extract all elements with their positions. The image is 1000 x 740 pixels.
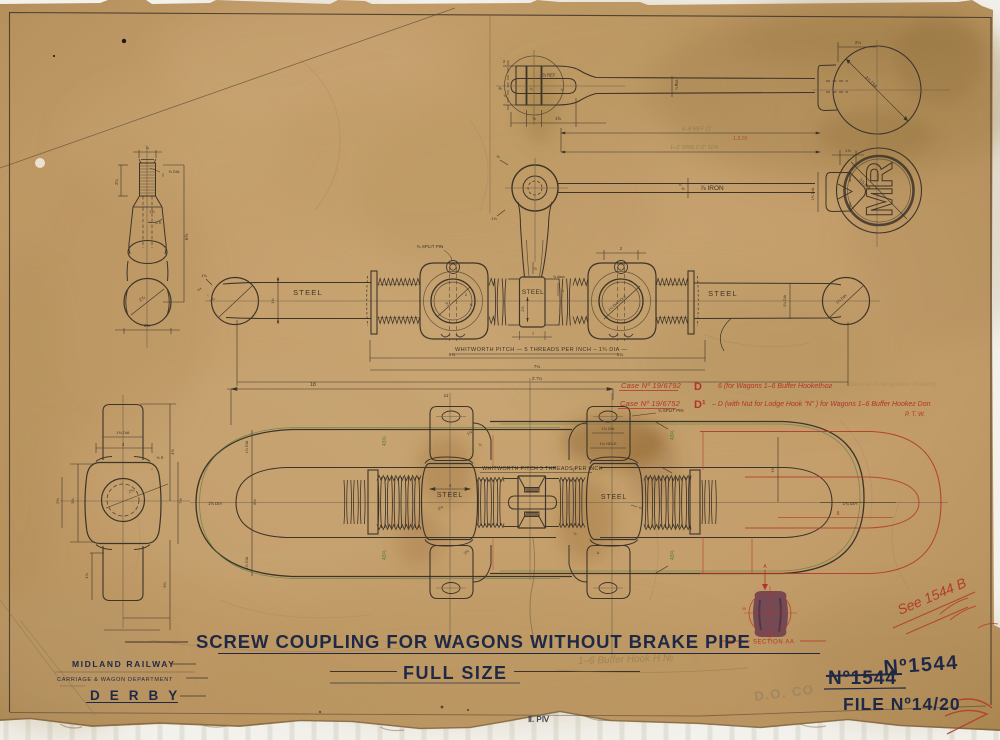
svg-text:D¹: D¹ — [694, 399, 706, 411]
svg-text:MR: MR — [859, 162, 900, 217]
svg-text:4½: 4½ — [170, 449, 175, 455]
svg-text:8⅞: 8⅞ — [184, 233, 189, 240]
svg-text:1⅜ DIA: 1⅜ DIA — [245, 440, 249, 453]
svg-text:¼: ¼ — [679, 183, 682, 187]
svg-text:43½: 43½ — [669, 429, 676, 440]
svg-text:⅜ R: ⅜ R — [157, 456, 164, 460]
svg-text:STEEL: STEEL — [437, 492, 463, 499]
svg-text:SECTION АА: SECTION АА — [753, 640, 794, 646]
svg-text:1⅝: 1⅝ — [555, 116, 561, 121]
svg-text:DERBY: DERBY — [90, 688, 187, 703]
svg-text:CARRIAGE & WAGON DEPARTMENT: CARRIAGE & WAGON DEPARTMENT — [57, 677, 173, 683]
svg-text:1⅝: 1⅝ — [270, 298, 275, 304]
svg-text:SCREW COUPLING FOR WAGONS WITH: SCREW COUPLING FOR WAGONS WITHOUT BRAKE … — [196, 631, 752, 652]
svg-text:8¾: 8¾ — [252, 499, 257, 505]
svg-text:D: D — [694, 381, 702, 393]
svg-text:⅞: ⅞ — [561, 289, 564, 293]
svg-text:8: 8 — [837, 511, 840, 517]
svg-text:1¾ DIA: 1¾ DIA — [843, 501, 858, 506]
svg-text:5¾: 5¾ — [449, 352, 456, 357]
svg-text:¾ R: ¾ R — [155, 221, 162, 225]
svg-text:2¾: 2¾ — [55, 498, 60, 504]
svg-text:1⅜: 1⅜ — [770, 467, 775, 473]
svg-text:⅝ diam: ⅝ diam — [553, 275, 565, 279]
svg-text:╳: ╳ — [161, 173, 164, 177]
svg-text:18: 18 — [310, 382, 316, 388]
svg-text:1⅝ DIA: 1⅝ DIA — [208, 501, 222, 506]
svg-text:1⅜ DIA: 1⅜ DIA — [783, 294, 787, 307]
svg-text:⅜: ⅜ — [470, 303, 473, 307]
svg-text:⅞: ⅞ — [145, 145, 149, 150]
svg-text:7½: 7½ — [178, 498, 183, 504]
svg-text:⅜ DIA: ⅜ DIA — [675, 79, 679, 90]
svg-text:2′.7¼: 2′.7¼ — [532, 376, 543, 381]
svg-text:⅞ REF: ⅞ REF — [542, 73, 555, 78]
svg-text:⅜: ⅜ — [498, 86, 502, 91]
svg-text:×: × — [151, 467, 153, 471]
svg-text:7¼: 7¼ — [534, 364, 541, 369]
svg-text:MIDLAND RAILWAY: MIDLAND RAILWAY — [72, 659, 176, 669]
svg-text:– D (with Nut for Lodge Hook “: – D (with Nut for Lodge Hook “N” ) for W… — [711, 401, 931, 408]
svg-text:5¾: 5¾ — [617, 352, 624, 357]
svg-text:¾: ¾ — [532, 116, 536, 121]
svg-text:3⅛: 3⅛ — [70, 498, 75, 504]
svg-text:WHITWORTH PITCH — 5 THREADS: WHITWORTH PITCH — 5 THREADS PER INCH – 1… — [455, 347, 627, 353]
svg-text:1⅝: 1⅝ — [845, 148, 851, 153]
svg-text:1⅜: 1⅜ — [491, 216, 497, 221]
svg-text:STEEL: STEEL — [708, 289, 738, 298]
svg-text:1¾: 1¾ — [84, 573, 89, 579]
svg-text:3⅛: 3⅛ — [162, 582, 167, 588]
svg-text:1⅜ DIA: 1⅜ DIA — [811, 187, 815, 200]
svg-text:43½: 43½ — [381, 549, 388, 560]
svg-text:General Arrangement Drawing: General Arrangement Drawing — [848, 381, 936, 388]
svg-text:6 (for Wagons 1–6 Buffer Hookе: 6 (for Wagons 1–6 Buffer HookеtҺог — [718, 383, 833, 390]
svg-text:2⅝: 2⅝ — [521, 306, 525, 312]
svg-text:45: 45 — [742, 607, 746, 611]
svg-text:11: 11 — [444, 393, 449, 398]
svg-text:1⅜ DIA: 1⅜ DIA — [245, 556, 249, 569]
svg-text:⅜: ⅜ — [639, 506, 642, 510]
svg-text:STEEL: STEEL — [293, 288, 323, 297]
svg-text:6–8 REF 11′: 6–8 REF 11′ — [682, 127, 713, 133]
svg-text:2⅜: 2⅜ — [144, 323, 150, 328]
svg-text:FILE Nº14/20: FILE Nº14/20 — [843, 694, 961, 714]
svg-text:╮: ╮ — [206, 293, 209, 297]
svg-text:1⅜: 1⅜ — [201, 273, 207, 278]
svg-text:1⅜: 1⅜ — [149, 210, 155, 214]
svg-text:¾: ¾ — [479, 443, 482, 447]
svg-text:¾: ¾ — [574, 532, 577, 536]
svg-text:⅝ DIA: ⅝ DIA — [168, 169, 179, 174]
svg-text:1¾ DIA: 1¾ DIA — [602, 426, 615, 431]
svg-text:⅜: ⅜ — [561, 88, 564, 92]
svg-text:1⅝ DIA: 1⅝ DIA — [117, 430, 130, 435]
svg-text:⅞ IRON: ⅞ IRON — [700, 185, 724, 192]
svg-text:43½: 43½ — [669, 549, 676, 560]
svg-text:P. T. W.: P. T. W. — [905, 412, 925, 418]
svg-text:1.3.19: 1.3.19 — [733, 136, 747, 142]
svg-text:1¾ HOLE: 1¾ HOLE — [599, 441, 616, 446]
svg-text:43½: 43½ — [381, 435, 388, 446]
svg-text:1: 1 — [532, 332, 534, 336]
svg-text:FULL SIZE: FULL SIZE — [403, 663, 509, 683]
svg-text:Case Nº 19/6752: Case Nº 19/6752 — [620, 399, 681, 408]
svg-text:2¼: 2¼ — [114, 179, 119, 185]
svg-text:STEEL: STEEL — [601, 494, 627, 501]
svg-text:2¼: 2¼ — [855, 40, 862, 45]
svg-text:1–1′ 2055 1′.0″ 11⅜: 1–1′ 2055 1′.0″ 11⅜ — [670, 145, 718, 151]
svg-text:Case Nº 19/6792: Case Nº 19/6792 — [621, 381, 682, 390]
svg-text:Ⅱ. PⅣ: Ⅱ. PⅣ — [528, 715, 550, 724]
svg-text:STEEL: STEEL — [522, 289, 544, 296]
svg-text:WHITWORTH PITCH 5 THREADS: WHITWORTH PITCH 5 THREADS PER INCH — [482, 466, 603, 472]
svg-text:¾ SPLIT PIN: ¾ SPLIT PIN — [417, 244, 444, 249]
